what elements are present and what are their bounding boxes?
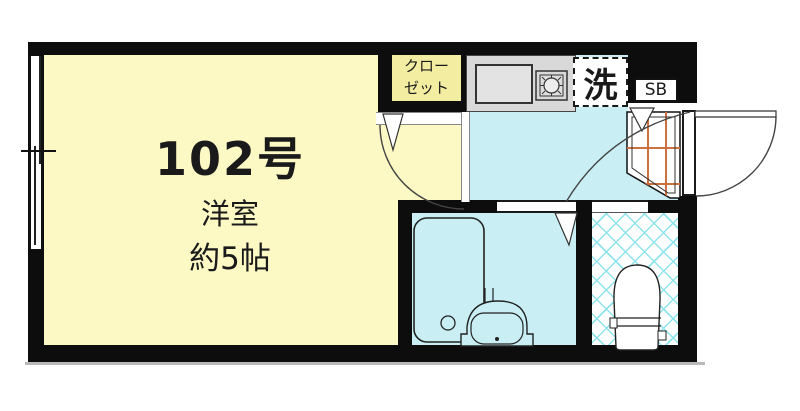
wall-bathroom-toilet <box>576 200 592 350</box>
closet: クロー ゼット <box>392 55 461 101</box>
entrance-door-panel <box>695 111 776 117</box>
closet-label-line2: ゼット <box>404 78 449 100</box>
bathroom-floor <box>410 211 578 347</box>
bottom-shadow-line <box>25 362 705 365</box>
window-sash-upper <box>39 56 41 164</box>
wall-bathroom-top <box>398 200 497 213</box>
wall-top <box>30 42 697 55</box>
washing-machine-space: 洗 <box>573 57 628 107</box>
toilet-door-opening <box>592 200 648 213</box>
kitchen-counter <box>466 55 576 112</box>
wall-bathroom-left <box>398 200 412 350</box>
wall-closet-bottom <box>390 101 466 112</box>
bathroom-door-opening <box>497 200 576 213</box>
kitchen-sink <box>475 64 533 104</box>
window-center-tick <box>21 150 56 152</box>
main-room-labels: 102号 洋室 約5帖 <box>80 134 380 277</box>
room-size-label: 約5帖 <box>80 242 380 276</box>
shoe-box: SB <box>634 78 678 102</box>
entrance-door-leaf <box>682 110 696 196</box>
wall-right-lower <box>678 196 697 362</box>
sliding-window <box>29 56 43 249</box>
wall-bottom <box>30 345 697 362</box>
wall-toilet-top <box>648 200 697 213</box>
room-door-opening <box>461 112 470 202</box>
entrance-door-arc <box>696 117 776 196</box>
floor-plan: クロー ゼット 洗 SB <box>0 0 800 411</box>
laundry-label: 洗 <box>584 58 618 107</box>
room-type-label: 洋室 <box>80 199 380 231</box>
closet-door-opening <box>376 112 467 125</box>
window-sash-lower <box>34 146 36 245</box>
shoe-box-label: SB <box>645 80 667 100</box>
toilet-tile-floor <box>590 211 680 349</box>
closet-label-line1: クロー <box>404 56 449 78</box>
entrance-door-opening <box>680 104 697 196</box>
room-number-label: 102号 <box>80 134 380 185</box>
